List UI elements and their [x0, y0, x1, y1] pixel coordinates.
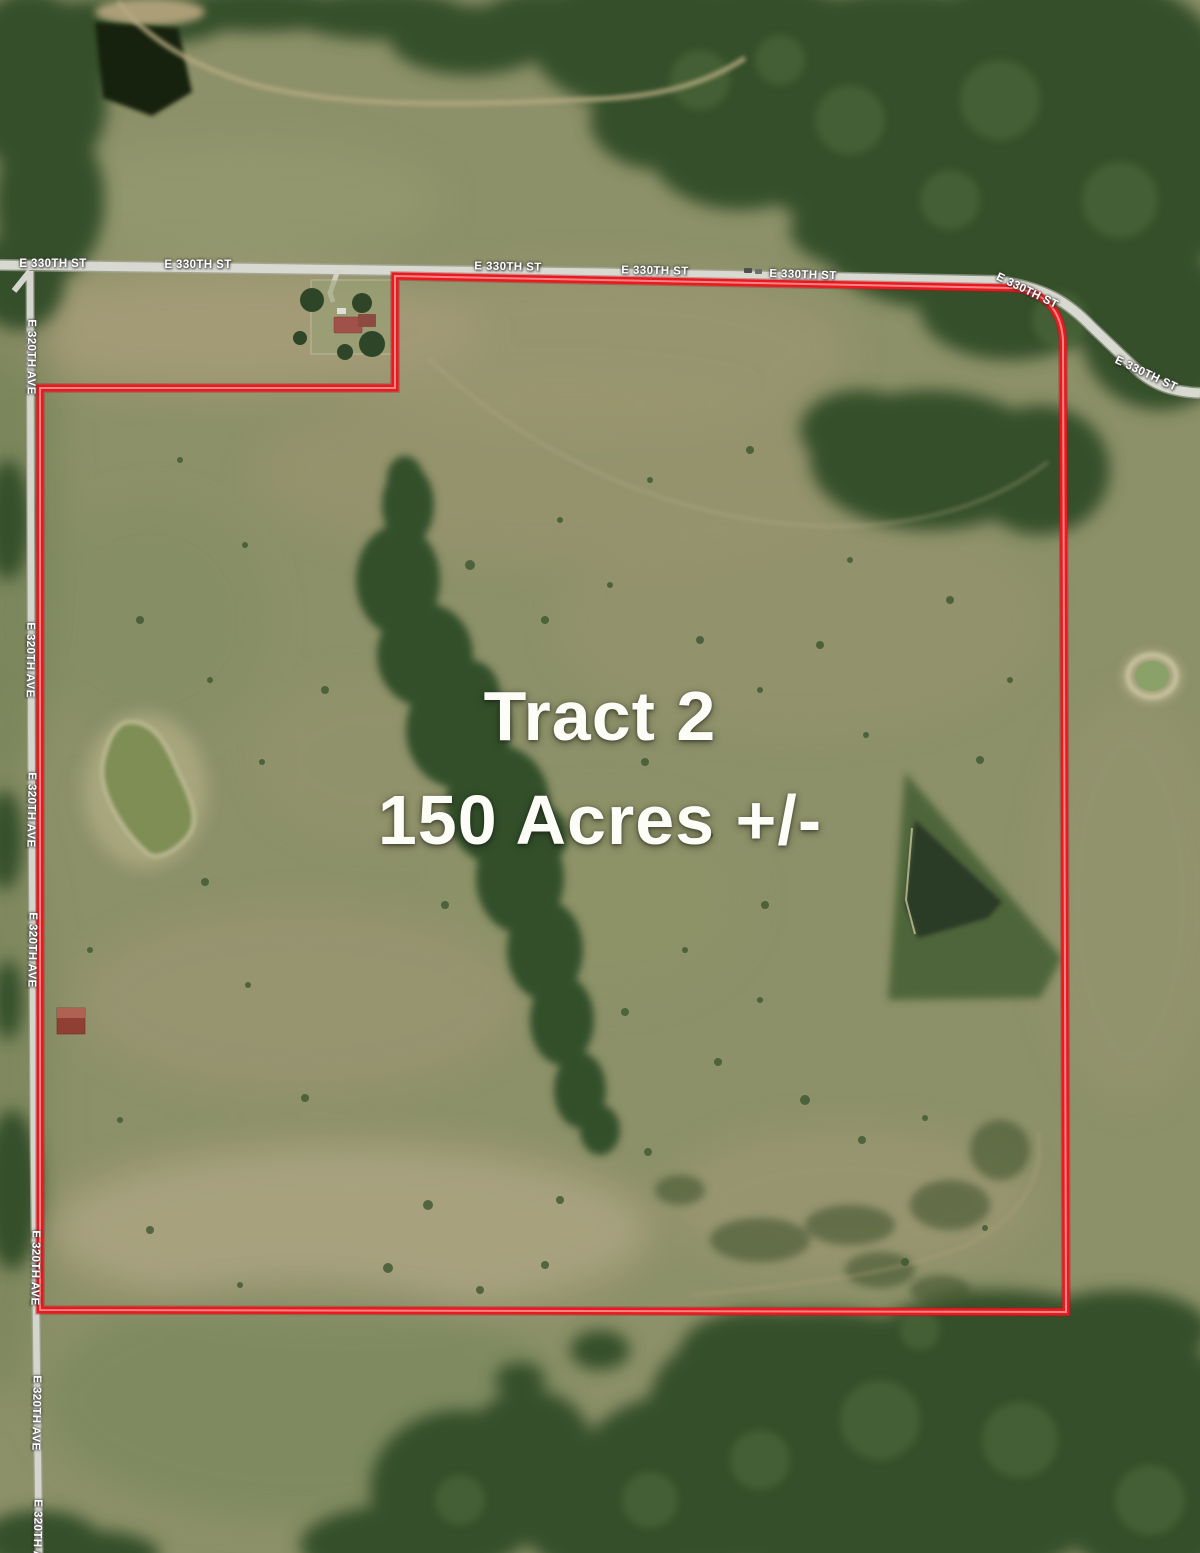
- white-shed: [337, 308, 346, 314]
- road-label-e320th-ave: E 320TH AVE: [28, 1230, 41, 1306]
- tract-title: Tract 2: [0, 664, 1200, 768]
- tract-label: Tract 2 150 Acres +/-: [0, 664, 1200, 872]
- road-label-e330th-st: E 330TH ST: [621, 264, 688, 277]
- road-label-e320th-ave: E 320TH AVE: [30, 1499, 43, 1553]
- farmhouse: [334, 317, 362, 333]
- road-label-e320th-ave: E 320TH AVE: [25, 319, 38, 394]
- road-label-e330th-st: E 330TH ST: [769, 268, 837, 282]
- road-label-e320th-ave: E 320TH AVE: [25, 912, 38, 988]
- road-label-e330th-st: E 330TH ST: [474, 260, 541, 273]
- farm-outbuilding: [358, 314, 376, 327]
- road-label-e320th-ave: E 320TH AVE: [29, 1375, 42, 1451]
- tract-acreage: 150 Acres +/-: [0, 768, 1200, 872]
- road-label-e330th-st: E 330TH ST: [164, 259, 231, 271]
- aerial-property-map: E 330TH ST E 330TH ST E 330TH ST E 330TH…: [0, 0, 1200, 1553]
- road-label-e330th-st: E 330TH ST: [19, 258, 86, 270]
- red-barn: [57, 1008, 85, 1034]
